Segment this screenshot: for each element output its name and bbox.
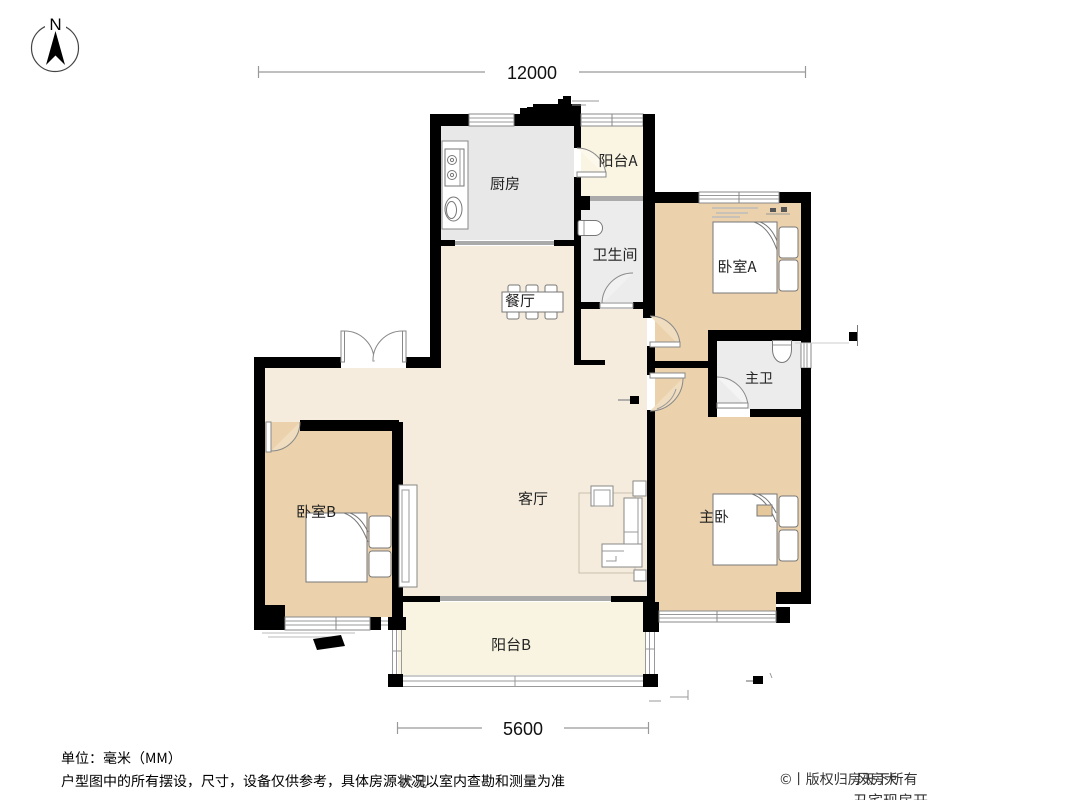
svg-text:12000: 12000	[507, 63, 557, 83]
svg-text:5600: 5600	[503, 719, 543, 739]
